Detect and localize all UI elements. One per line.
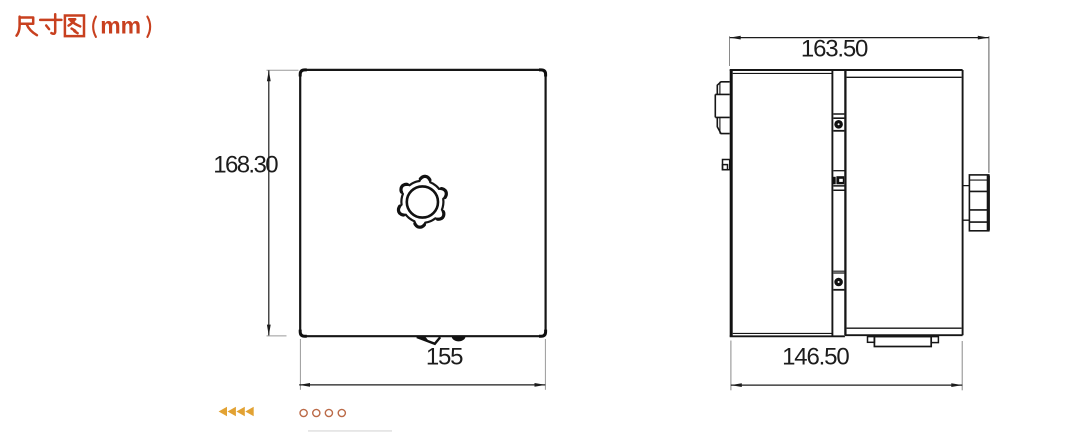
svg-text:163.50: 163.50 bbox=[801, 35, 869, 62]
svg-text:146.50: 146.50 bbox=[782, 344, 850, 371]
svg-text:mm: mm bbox=[100, 12, 141, 38]
svg-text:155: 155 bbox=[426, 343, 464, 370]
svg-text:168.30: 168.30 bbox=[213, 152, 278, 179]
